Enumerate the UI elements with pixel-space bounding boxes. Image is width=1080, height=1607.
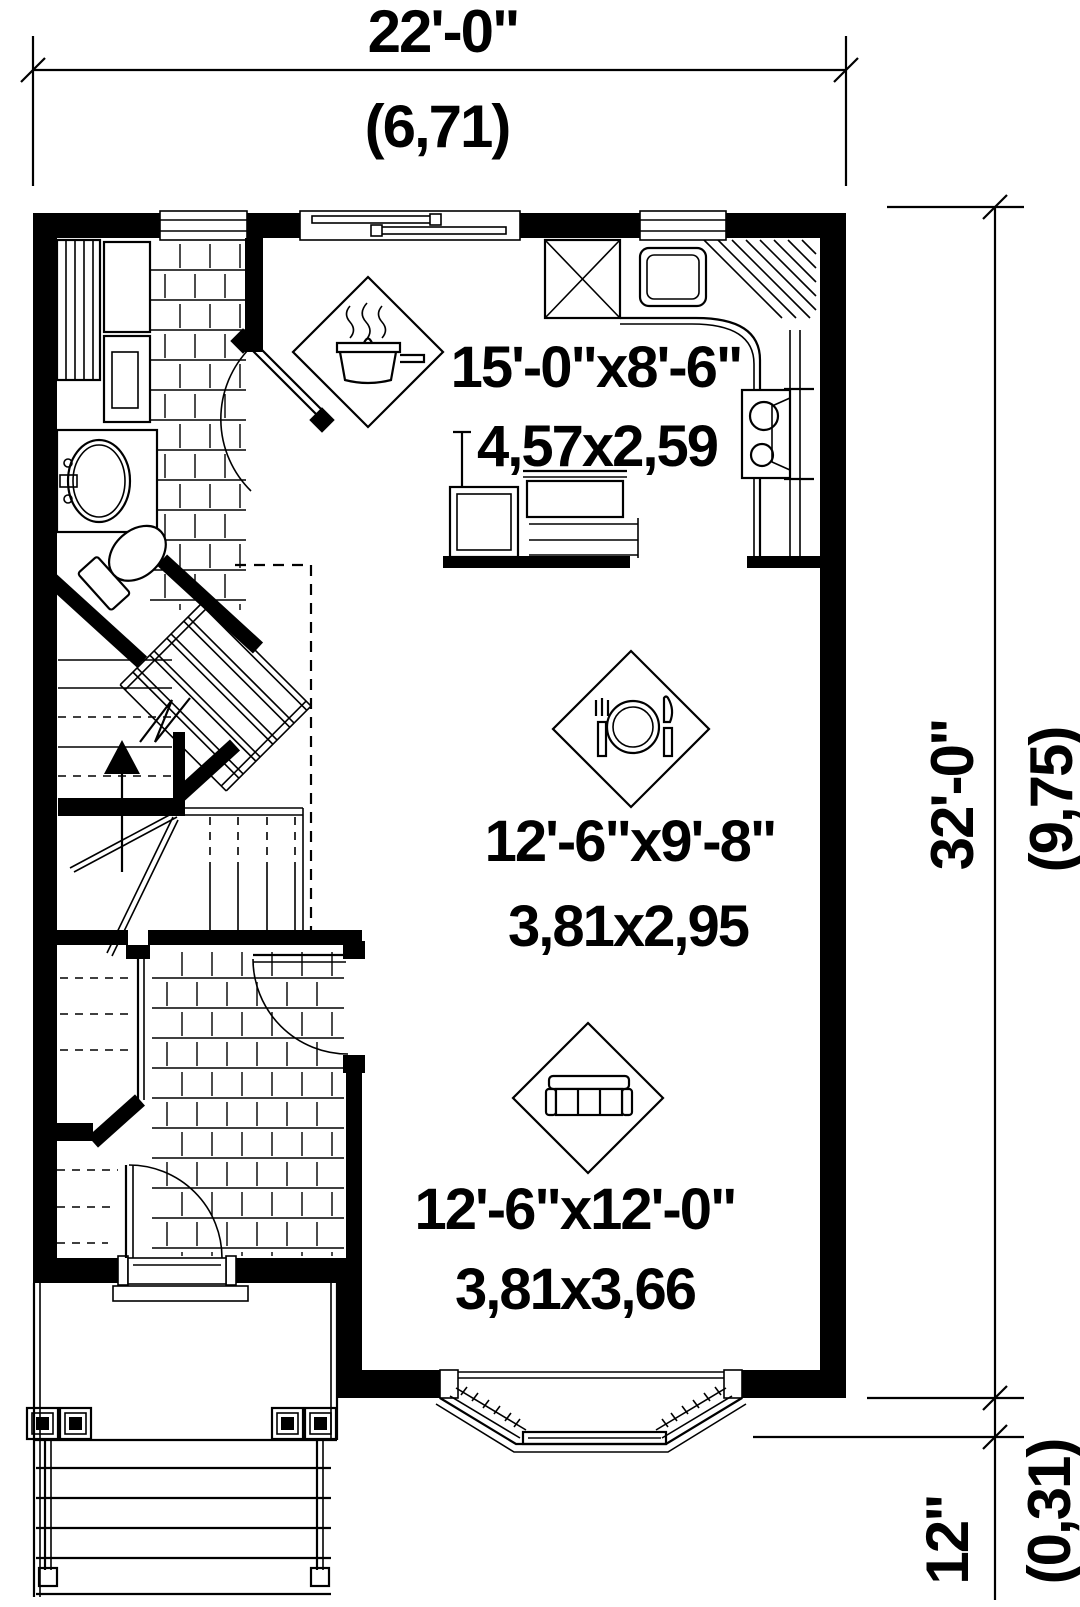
vanity-counter [57, 430, 157, 532]
bathroom [57, 240, 178, 611]
window-icon [160, 211, 247, 240]
bay-side-window-right [656, 1387, 732, 1438]
floor-plan-page: 22'-0" (6,71) 32'-0" (9,75) 12" (0,31) [0, 0, 1080, 1607]
window-icon [640, 211, 726, 240]
door-swing-arc [253, 959, 348, 1054]
sofa-icon [546, 1076, 632, 1115]
stove-icon [742, 389, 814, 479]
foyer-tile-floor [152, 952, 344, 1256]
dimension-bay-imperial: 12" [914, 1495, 981, 1584]
corner-cabinet-hatch [704, 240, 816, 318]
fridge-icon [450, 487, 518, 557]
kitchen-label-imperial: 15'-0"x8'-6" [451, 335, 742, 400]
stair-up-arrow [104, 740, 140, 774]
bay-side-window-left [450, 1387, 526, 1438]
cabinet [104, 242, 150, 332]
front-door [113, 1165, 248, 1301]
living-room-door [253, 955, 348, 1054]
bay-window [436, 1370, 746, 1452]
threshold [128, 1258, 226, 1284]
dining-label-imperial: 12'-6"x9'-8" [485, 809, 776, 874]
living-symbol [513, 1023, 663, 1173]
kitchen-wall-stub [747, 556, 822, 568]
entry-step [113, 1286, 248, 1301]
diamond-outline [553, 651, 709, 807]
dimension-height-metric: (9,75) [1018, 728, 1080, 873]
porch-railings [39, 1440, 329, 1586]
porch-posts [27, 1408, 336, 1439]
closet-angled-wall [93, 1100, 140, 1142]
island-counter [527, 481, 623, 517]
dining-symbol [553, 651, 709, 807]
dimension-width-imperial: 22'-0" [368, 0, 519, 65]
dimension-top-width: 22'-0" (6,71) [21, 0, 858, 186]
dimension-bay-metric: (0,31) [1016, 1440, 1080, 1585]
porch [27, 1283, 337, 1597]
top-wall-windows [160, 211, 726, 240]
kitchen-label-metric: 4,57x2,59 [477, 414, 718, 479]
cooking-pot-icon [337, 303, 424, 383]
bathroom-door [221, 328, 335, 491]
door-swing-arc [129, 1165, 222, 1258]
living-label-imperial: 12'-6"x12'-0" [414, 1177, 735, 1242]
floor-plan-canvas: 22'-0" (6,71) 32'-0" (9,75) 12" (0,31) [0, 0, 1080, 1607]
dining-label-metric: 3,81x2,95 [508, 894, 749, 959]
dimension-height-imperial: 32'-0" [919, 720, 986, 871]
dimension-width-metric: (6,71) [365, 93, 510, 160]
cabinet [104, 336, 150, 422]
living-label-metric: 3,81x3,66 [455, 1257, 696, 1322]
door-leaf [250, 348, 316, 414]
place-setting-icon [596, 697, 672, 757]
stair-down-flight [210, 808, 303, 930]
porch-steps [36, 1468, 331, 1594]
